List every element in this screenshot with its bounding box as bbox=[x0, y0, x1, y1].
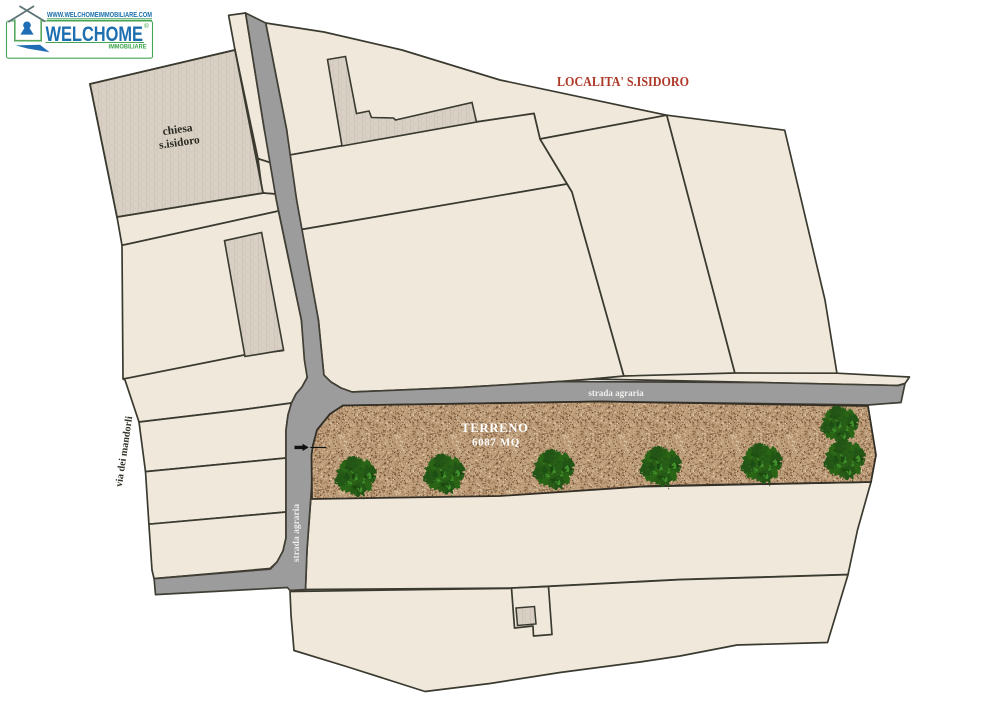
svg-text:LOCALITA' S.ISIDORO: LOCALITA' S.ISIDORO bbox=[557, 75, 689, 90]
svg-text:WWW.WELCHOMEIMMOBILIARE.COM: WWW.WELCHOMEIMMOBILIARE.COM bbox=[47, 12, 152, 19]
svg-text:strada agraria: strada agraria bbox=[588, 388, 644, 398]
svg-text:strada agraria: strada agraria bbox=[292, 504, 302, 563]
svg-text:IMMOBILIARE: IMMOBILIARE bbox=[109, 43, 148, 50]
svg-text:®: ® bbox=[144, 22, 149, 30]
svg-text:TERRENO: TERRENO bbox=[461, 421, 528, 435]
svg-text:6087 MQ: 6087 MQ bbox=[472, 437, 520, 449]
